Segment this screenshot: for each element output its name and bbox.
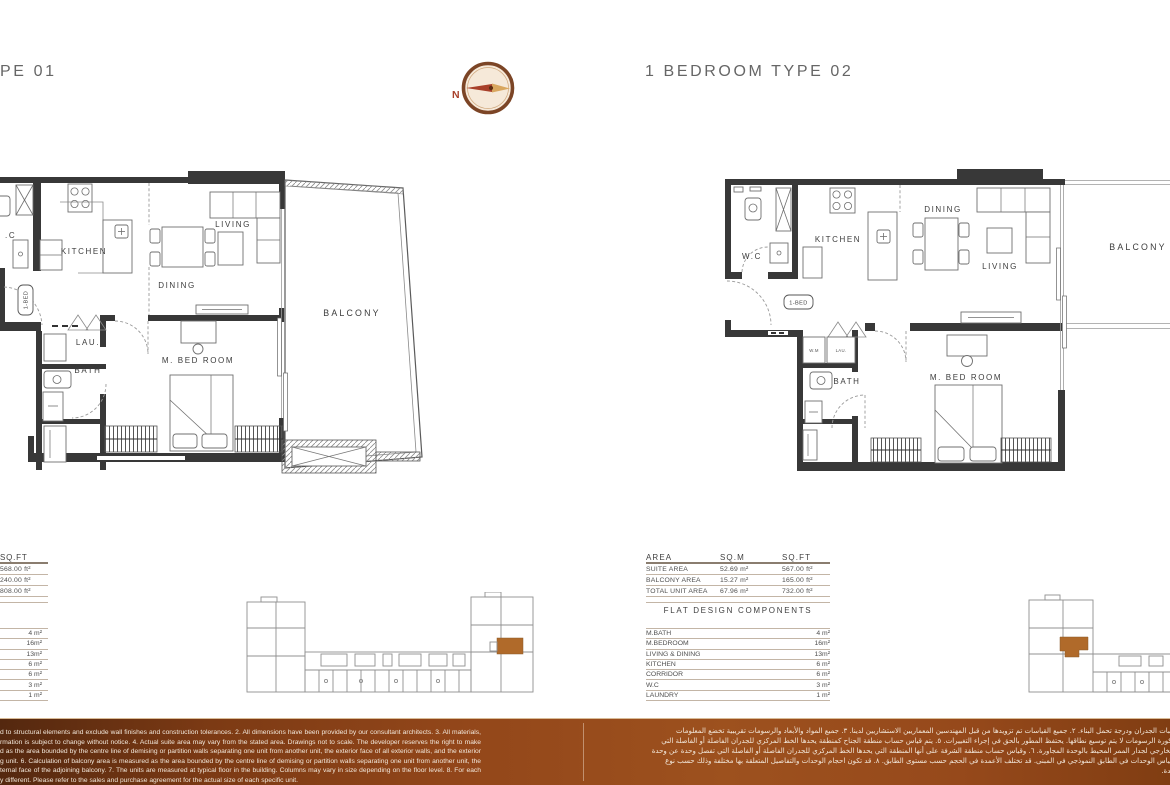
wc-fixtures (0, 185, 62, 270)
cabinet (803, 430, 817, 460)
toilet (745, 198, 761, 220)
room-label-kitchen: KITCHEN (61, 247, 107, 256)
compass-icon: N (450, 58, 524, 120)
toilet (0, 196, 10, 216)
counter (803, 247, 822, 278)
sink (770, 243, 788, 263)
area-table-type-01-cropped: SQ.FT 568.00 ft² 240.00 ft² 808.00 ft² 4… (0, 551, 48, 701)
disclaimer-line: المجاورة. ٧. يتم قياس الوحدات في الطابق … (688, 757, 1170, 767)
key-plan-type-02 (1023, 592, 1170, 704)
component-row: 3 m² (0, 680, 48, 690)
compass-north-label: N (452, 89, 460, 101)
header-area: AREA (646, 553, 720, 562)
disclaimer-english: d to structural elements and exclude wal… (0, 728, 481, 785)
table-row: 808.00 ft² (0, 586, 48, 597)
kitchen-counter (868, 212, 897, 280)
floor-plan-type-02: 1-BED W.C KITCHEN DINING LIVING BALCONY … (720, 168, 1170, 480)
room-label-laundry: LAU. (836, 348, 847, 353)
stool (962, 356, 973, 367)
room-label-bath: BATH (74, 366, 101, 375)
floor-plan-type-01: 1-BED .C KITCHEN LIVING DINING BALCONY L… (0, 168, 432, 480)
kitchen-fixtures (60, 184, 132, 273)
component-row-mbath: M.BATH 4 m² (646, 629, 830, 639)
footer-disclaimer-band: d to structural elements and exclude wal… (0, 718, 1170, 785)
component-row-corridor: CORRIDOR 6 m² (646, 670, 830, 680)
room-label-living: LIVING (982, 262, 1018, 271)
room-label-balcony: BALCONY (1109, 242, 1166, 252)
component-row: 4 m² (0, 629, 48, 639)
unit-tag-label: 1-BED (789, 301, 807, 307)
dining-table (925, 218, 958, 270)
sliding-door (1057, 248, 1061, 300)
washer (44, 334, 66, 361)
disclaimer-line: ternal face of the adjoining balcony. 7.… (0, 766, 481, 776)
corridor-ticks (1107, 656, 1163, 692)
stool (193, 344, 203, 354)
room-label-bath: BATH (833, 377, 860, 386)
room-label-dining: DINING (924, 205, 962, 214)
room-label-wc: W.C (742, 252, 762, 261)
unit-tag: 1-BED (18, 285, 33, 315)
room-label-wc: .C (5, 231, 16, 240)
page-title-left: PE 01 (0, 63, 57, 81)
living-furniture (977, 188, 1050, 263)
sink (13, 240, 28, 268)
bedroom-furniture (871, 312, 1051, 463)
component-row: 1 m² (0, 691, 48, 701)
unit-highlight (497, 638, 523, 654)
component-row-laundry: LAUNDRY 1 m² (646, 691, 830, 701)
component-row: 16m² (0, 639, 48, 649)
room-label-kitchen: KITCHEN (815, 235, 861, 244)
room-label-wm: W.M (809, 348, 819, 353)
disclaimer-line: d as the area bounded by the centre line… (0, 747, 481, 757)
bedroom-furniture (105, 305, 283, 452)
ac-ledge (282, 440, 420, 473)
kitchen-fixtures (803, 188, 897, 280)
room-label-master-bedroom: M. BED ROOM (162, 356, 234, 365)
component-row-living-dining: LIVING & DINING 13m² (646, 650, 830, 660)
components-table-title: FLAT DESIGN COMPONENTS (646, 606, 830, 616)
disclaimer-line: الخارجية والوجه الخارجي لجدار الممر المح… (688, 747, 1170, 757)
sofa (977, 188, 1050, 212)
sqft-column-header: SQ.FT (0, 551, 48, 564)
disclaimer-line: d to structural elements and exclude wal… (0, 728, 481, 738)
coffee-table (987, 228, 1012, 253)
balcony-structure (278, 180, 423, 468)
unit-tag-label: 1-BED (24, 291, 30, 309)
bathtub (44, 371, 71, 388)
component-row: 6 m² (0, 660, 48, 670)
desk (181, 321, 216, 343)
dining-table (162, 227, 203, 267)
table-header-row: AREA SQ.M SQ.FT (646, 551, 830, 564)
stove (68, 184, 92, 212)
table-row-balcony-area: BALCONY AREA 15.27 m² 165.00 ft² (646, 575, 830, 586)
header-sqft: SQ.FT (782, 553, 830, 562)
area-table-type-02: AREA SQ.M SQ.FT SUITE AREA 52.69 m² 567.… (646, 551, 830, 701)
dining-furniture (150, 227, 215, 267)
disclaimer-line: ام الفعلي لكل وحدة. (688, 767, 1170, 777)
table-row: 568.00 ft² (0, 564, 48, 575)
room-label-master-bedroom: M. BED ROOM (930, 373, 1002, 382)
corridor-ticks (319, 670, 459, 692)
disclaimer-line: جميع اسعة لتشطيبات الجدران ودرجة تحمل ال… (688, 727, 1170, 737)
pillow (938, 447, 964, 461)
page-title-right: 1 BEDROOM TYPE 02 (645, 63, 853, 81)
component-row-kitchen: KITCHEN 6 m² (646, 660, 830, 670)
component-row-wc: W.C 3 m² (646, 680, 830, 690)
sliding-door (278, 318, 282, 376)
key-plan-type-01 (243, 592, 537, 704)
balcony-structure (1057, 181, 1170, 391)
brochure-page: PE 01 1 BEDROOM TYPE 02 N (0, 0, 1170, 785)
unit-tag: 1-BED (784, 295, 813, 309)
table-row-total-unit-area: TOTAL UNIT AREA 67.96 m² 732.00 ft² (646, 586, 830, 597)
disclaimer-line: y different. Please refer to the sales a… (0, 776, 481, 785)
disclaimer-arabic: جميع اسعة لتشطيبات الجدران ودرجة تحمل ال… (688, 727, 1170, 777)
disclaimer-line: rmation is subject to change without not… (0, 738, 481, 748)
disclaimer-line: عن المساحة المذكورة الرسومات لا يتم توسي… (688, 737, 1170, 747)
room-label-laundry: LAU. (76, 338, 100, 347)
component-row: 13m² (0, 650, 48, 660)
room-label-dining: DINING (158, 281, 196, 290)
cabinet (44, 426, 66, 462)
room-label-balcony: BALCONY (323, 308, 380, 318)
footer-divider (583, 723, 584, 781)
disclaimer-line: g unit. 6. Calculation of balcony area i… (0, 757, 481, 767)
component-row-mbedroom: M.BEDROOM 16m² (646, 639, 830, 649)
pillow (173, 434, 197, 448)
dining-furniture (913, 218, 969, 270)
table-row-suite-area: SUITE AREA 52.69 m² 567.00 ft² (646, 564, 830, 575)
room-label-living: LIVING (215, 220, 251, 229)
coffee-table (218, 232, 243, 265)
bathtub (810, 372, 832, 389)
pillow (202, 434, 227, 448)
bath-sink (43, 392, 63, 421)
table-row: 240.00 ft² (0, 575, 48, 586)
sofa (210, 192, 280, 218)
header-sqm: SQ.M (720, 553, 782, 562)
pillow (970, 447, 996, 461)
desk (947, 335, 987, 356)
component-row: 6 m² (0, 670, 48, 680)
